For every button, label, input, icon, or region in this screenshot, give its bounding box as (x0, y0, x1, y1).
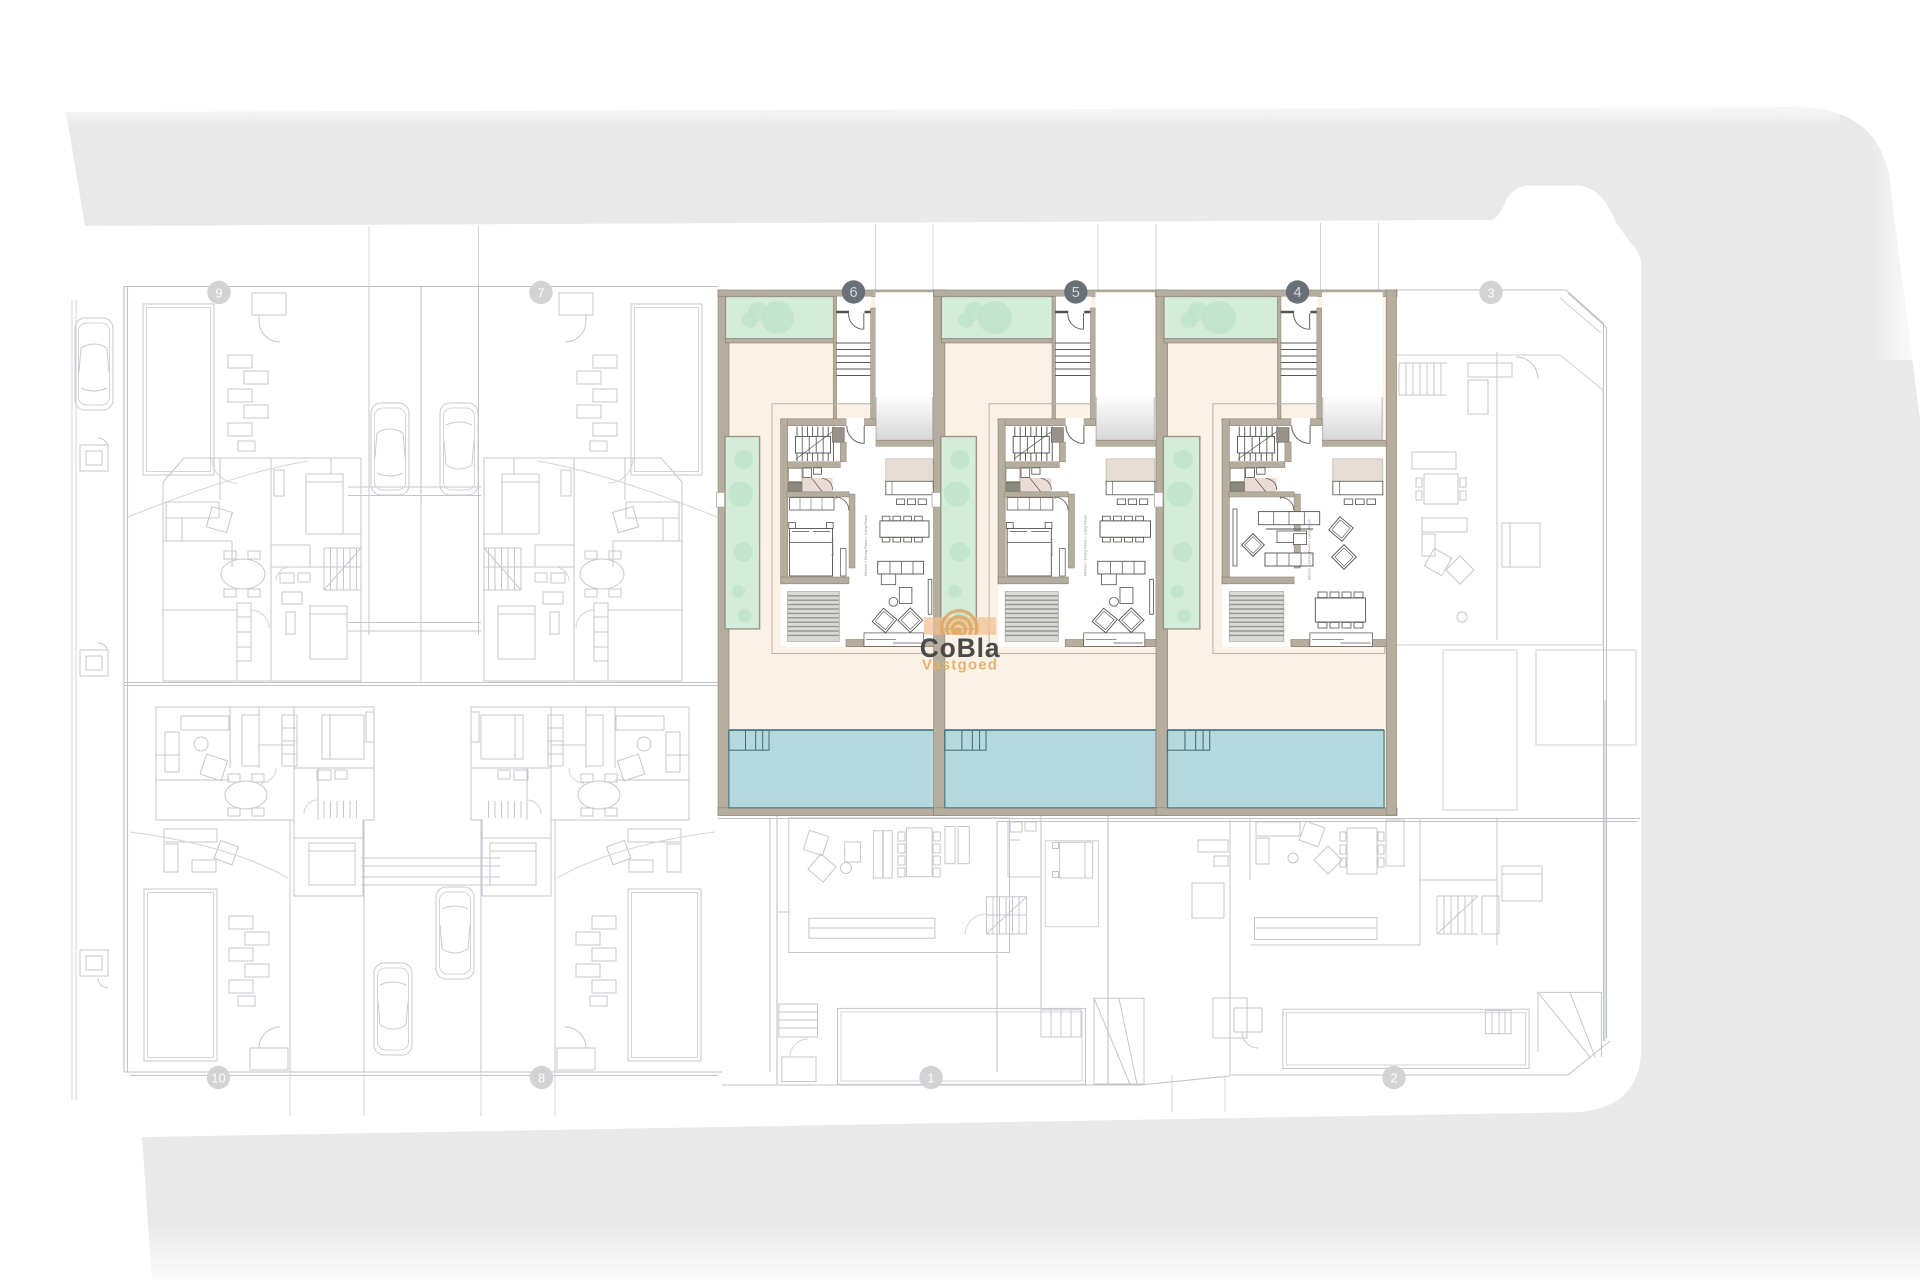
svg-text:7: 7 (537, 286, 544, 301)
svg-text:5: 5 (1072, 285, 1080, 301)
svg-text:9: 9 (215, 286, 222, 301)
svg-text:Kitchen + Dining Room + Living: Kitchen + Dining Room + Living Room (1308, 519, 1312, 580)
svg-text:4: 4 (1293, 285, 1301, 301)
svg-text:2: 2 (1390, 1071, 1397, 1086)
svg-text:1: 1 (927, 1071, 934, 1086)
svg-text:Vastgoed: Vastgoed (922, 656, 998, 673)
svg-text:8: 8 (538, 1071, 545, 1086)
svg-text:6: 6 (849, 285, 857, 301)
svg-text:3: 3 (1487, 286, 1494, 301)
svg-text:10: 10 (211, 1071, 225, 1086)
